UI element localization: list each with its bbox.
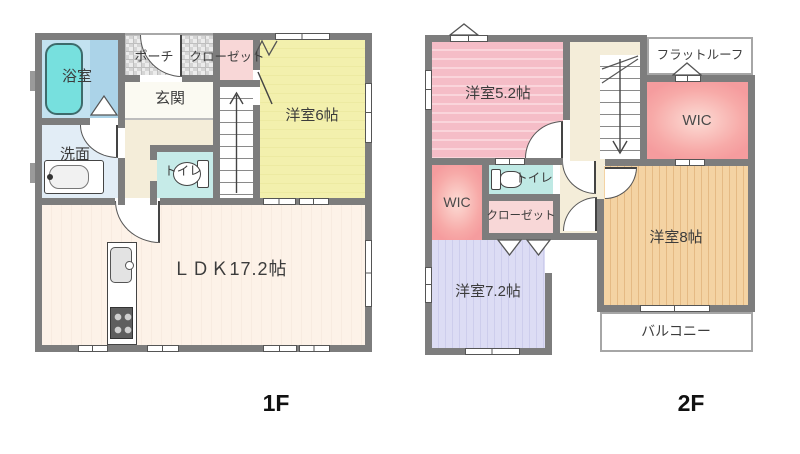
stairs-down-arrow-icon: [600, 55, 640, 159]
window: [365, 83, 372, 143]
washbasin-icon: [44, 160, 104, 194]
room-label-bedroom6: 洋室6帖: [262, 107, 362, 124]
window: [425, 267, 432, 303]
window: [299, 198, 329, 205]
wall: [150, 145, 220, 152]
wall: [597, 199, 604, 312]
stairs-2f: [600, 55, 640, 159]
window: [263, 345, 297, 352]
wall: [118, 158, 125, 205]
wall: [748, 75, 755, 312]
window: [78, 345, 108, 352]
floor-label-2f: 2F: [661, 390, 721, 417]
kitchen-counter: [107, 242, 137, 345]
wall: [35, 198, 115, 205]
window: [299, 345, 330, 352]
room-label-bathroom: 浴室: [47, 68, 107, 85]
wall: [118, 75, 140, 82]
window: [450, 35, 488, 42]
bay-window-icon: [449, 23, 479, 36]
room-label-balcony: バルコニー: [631, 323, 721, 339]
window: [425, 70, 432, 110]
window: [465, 348, 520, 355]
floorplan-canvas: 浴室 ポーチ クローゼット 玄関 洗面 トイレ 洋室6帖 ＬＤＫ17.2帖: [0, 0, 800, 454]
room-label-bedroom52: 洋室5.2帖: [448, 85, 548, 102]
wall: [563, 42, 570, 120]
window: [263, 198, 296, 205]
floor-label-1f: 1F: [246, 390, 306, 417]
window: [365, 240, 372, 307]
stairs-up-arrow-icon: [220, 87, 253, 198]
room-label-bedroom72: 洋室7.2帖: [438, 283, 538, 300]
window: [675, 75, 701, 82]
bedroom6-door-leaf: [256, 71, 274, 106]
stairs-1f: [220, 87, 253, 198]
window: [147, 345, 179, 352]
room-label-flatroof: フラットルーフ: [650, 48, 750, 62]
entrance-step-line: [125, 118, 213, 120]
room-label-bedroom8: 洋室8帖: [631, 229, 721, 246]
wall: [122, 33, 213, 35]
stove-icon: [110, 307, 133, 339]
room-label-toilet: トイレ: [157, 164, 209, 178]
wall: [425, 158, 563, 165]
wall: [150, 181, 157, 205]
wall: [35, 33, 122, 40]
wall: [35, 118, 90, 125]
wall: [482, 194, 560, 201]
closet-folding-door-icon: [526, 239, 551, 256]
room-label-porch: ポーチ: [123, 50, 185, 65]
floorplan-1f: 浴室 ポーチ クローゼット 玄関 洗面 トイレ 洋室6帖 ＬＤＫ17.2帖: [35, 33, 372, 352]
window: [495, 158, 525, 165]
room-label-toilet2f: トイレ: [511, 171, 557, 185]
room-label-wic-left: WIC: [427, 194, 487, 210]
room-label-wic-top: WIC: [667, 112, 727, 129]
wall: [213, 80, 260, 87]
bay-window-icon: [672, 62, 702, 76]
room-label-closet: クローゼット: [185, 50, 269, 64]
wall: [182, 75, 213, 82]
room-label-ldk: ＬＤＫ17.2帖: [145, 259, 315, 280]
window: [275, 33, 330, 40]
room-label-entrance: 玄関: [135, 90, 205, 107]
room-label-washroom: 洗面: [45, 146, 105, 163]
floorplan-2f: 洋室5.2帖 フラットルーフ WIC トイレ WIC クローゼット 洋室8帖 洋…: [425, 33, 755, 355]
window: [675, 159, 705, 166]
wall: [213, 87, 220, 198]
room-label-closet2f: クローゼット: [483, 210, 559, 223]
bathroom-folding-door-icon: [90, 95, 118, 116]
wall: [640, 35, 647, 165]
wall: [253, 105, 260, 198]
kitchen-faucet-icon: [125, 261, 134, 270]
wall: [35, 33, 42, 352]
closet-folding-door-icon: [497, 239, 522, 256]
window: [640, 305, 710, 312]
wall: [150, 145, 157, 160]
wall: [545, 273, 552, 355]
